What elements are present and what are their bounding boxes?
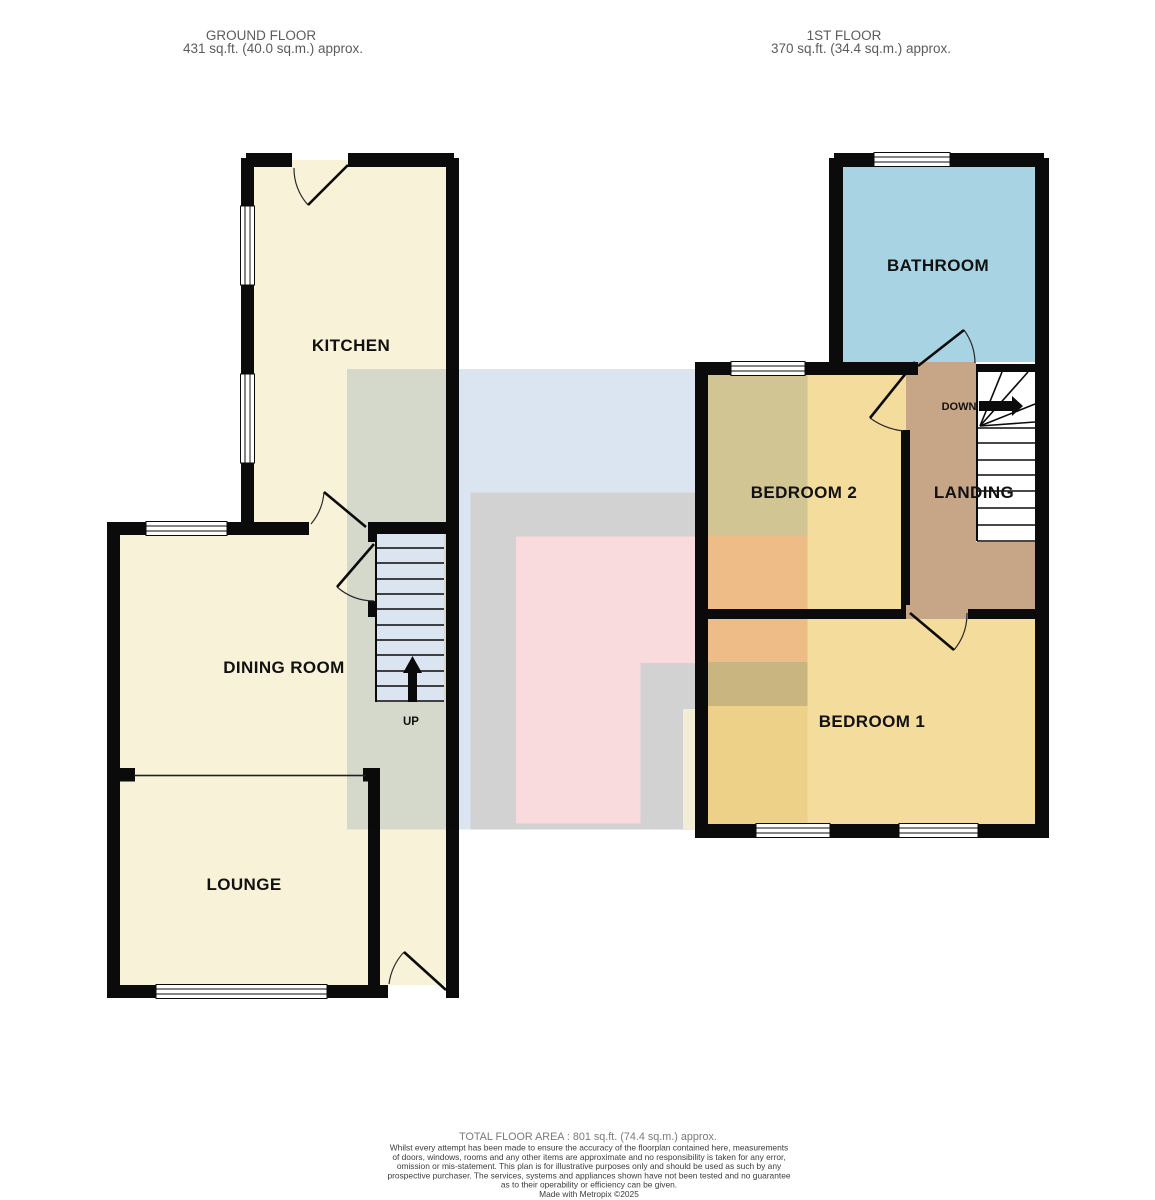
svg-text:KITCHEN: KITCHEN <box>312 336 390 355</box>
svg-text:431 sq.ft. (40.0 sq.m.) approx: 431 sq.ft. (40.0 sq.m.) approx. <box>183 41 363 56</box>
svg-text:DINING ROOM: DINING ROOM <box>223 658 345 677</box>
svg-text:BEDROOM 2: BEDROOM 2 <box>751 483 858 502</box>
svg-text:LOUNGE: LOUNGE <box>206 875 281 894</box>
svg-text:370 sq.ft. (34.4 sq.m.) approx: 370 sq.ft. (34.4 sq.m.) approx. <box>771 41 951 56</box>
svg-text:Made with Metropix ©2025: Made with Metropix ©2025 <box>539 1189 639 1199</box>
svg-text:TOTAL FLOOR AREA : 801 sq.ft.: TOTAL FLOOR AREA : 801 sq.ft. (74.4 sq.m… <box>459 1131 717 1143</box>
svg-text:LANDING: LANDING <box>934 483 1014 502</box>
svg-text:DOWN: DOWN <box>942 401 977 413</box>
svg-text:BEDROOM 1: BEDROOM 1 <box>819 712 926 731</box>
svg-text:BATHROOM: BATHROOM <box>887 256 989 275</box>
